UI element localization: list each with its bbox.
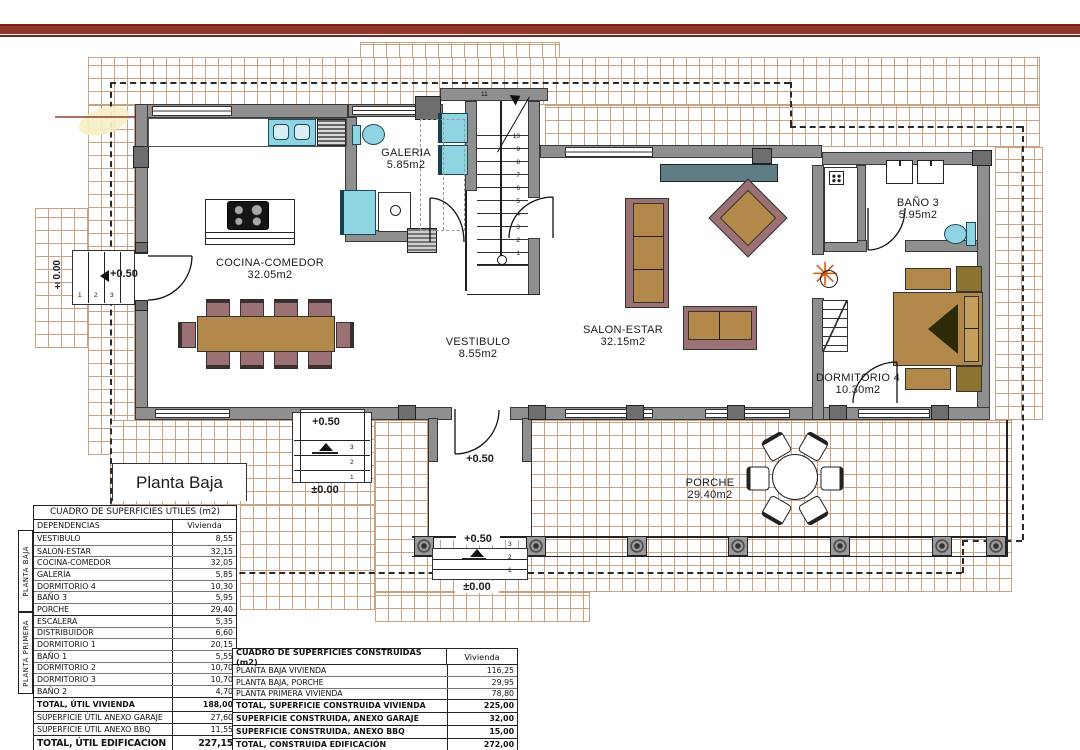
row-label: TOTAL, ÚTIL VIVIENDA <box>34 698 172 711</box>
stairs-step-number-11: 11 <box>481 91 488 98</box>
step-line <box>433 569 527 570</box>
door-galeria <box>429 198 466 244</box>
wall-stairs-right-upper <box>528 101 540 198</box>
toilet-galeria-bowl <box>362 124 385 145</box>
table-header-row: DEPENDENCIAS Vivienda <box>34 520 236 533</box>
window <box>155 409 230 418</box>
step-number: 3 <box>110 292 114 299</box>
row-label: SALON-ESTAR <box>34 546 172 557</box>
wall-block <box>829 405 847 420</box>
step-line <box>294 455 370 456</box>
window <box>705 409 790 418</box>
row-value: 188,00 <box>172 698 236 711</box>
row-label: DORMITORIO 4 <box>34 581 172 592</box>
door-understairs <box>509 197 555 240</box>
wall-block <box>626 405 644 420</box>
step-number: 3 <box>350 444 354 451</box>
kitchen-drainer <box>317 119 346 146</box>
wall-entry-wing-right <box>522 418 532 462</box>
table-row: PLANTA BAJA, PORCHE29,95 <box>233 676 517 687</box>
wall-block <box>931 405 949 420</box>
row-label: TOTAL, SUPERFICIE CONSTRUIDA VIVIENDA <box>233 700 447 712</box>
top-rule-thick <box>0 26 1080 34</box>
dining-chair <box>240 299 264 317</box>
dining-chair <box>274 351 298 369</box>
row-value: 8,55 <box>172 533 236 545</box>
room-label-cocina: COCINA-COMEDOR 32.05m2 <box>216 257 324 281</box>
row-value: 32,00 <box>447 713 517 725</box>
bed-blanket-fold <box>928 304 958 354</box>
level-marker: ±0.00 <box>303 484 347 496</box>
porch-pillar <box>728 536 748 556</box>
door-jamb-block <box>135 242 148 253</box>
table-row: PORCHE29,40 <box>34 603 236 615</box>
level-arrow-base <box>462 558 486 560</box>
row-label: DORMITORIO 2 <box>34 663 172 674</box>
level-arrow-base <box>312 452 338 454</box>
floor-group-label: PLANTA PRIMERA <box>18 612 33 694</box>
stairs-center-rail <box>500 101 502 257</box>
row-label: BAÑO 1 <box>34 651 172 662</box>
row-value: 20,15 <box>172 639 236 650</box>
toilet-galeria-tank <box>352 125 361 145</box>
tile-band-top <box>88 57 1040 105</box>
step-number: 1 <box>350 474 354 481</box>
floor-title-box: Planta Baja <box>112 463 247 501</box>
step-line <box>294 470 370 471</box>
row-label: SUPERFICIE ÚTIL ANEXO GARAJE <box>34 712 172 723</box>
tile-bottom-left-lower <box>240 505 375 610</box>
tile-band-top-notch <box>360 42 560 58</box>
dining-chair <box>206 351 230 369</box>
sofa-cushion-line <box>633 236 664 237</box>
bathroom-sink <box>886 160 913 184</box>
wall-left-lower <box>135 302 148 420</box>
row-value: 272,00 <box>447 739 517 750</box>
dining-chair <box>308 299 332 317</box>
row-value: 29,40 <box>172 604 236 615</box>
level-marker: +0.50 <box>456 533 500 545</box>
row-value: 5,55 <box>172 651 236 662</box>
table-total-row: TOTAL, CONSTRUIDA EDIFICACIÓN272,00 <box>233 738 517 750</box>
wall-salon-bedroom-divider-upper <box>812 165 824 255</box>
dining-chair <box>308 351 332 369</box>
plant-pot-ring <box>820 270 838 288</box>
step-number: 2 <box>94 292 98 299</box>
sofa-cushion-line <box>719 311 720 340</box>
column-header: Vivienda <box>172 520 236 532</box>
dining-chair <box>206 299 230 317</box>
boundary-dash-right <box>1022 126 1024 540</box>
window <box>858 409 930 418</box>
row-value: 116,25 <box>447 665 517 676</box>
porch-pillar <box>414 536 434 556</box>
column-header: DEPENDENCIAS <box>34 520 172 532</box>
table-row: SALON-ESTAR32,15 <box>34 545 236 557</box>
row-label: SUPERFICIE CONSTRUIDA, ANEXO BBQ <box>233 726 447 738</box>
row-value: 10,30 <box>172 581 236 592</box>
row-label: GALERÍA <box>34 569 172 580</box>
table-superficies-construidas: CUADRO DE SUPERFICIES CONSTRUIDAS (m2) V… <box>232 648 518 750</box>
row-value: 15,00 <box>447 726 517 738</box>
table-row: BAÑO 24,70 <box>34 685 236 697</box>
table-body: VESTIBULO8,55SALON-ESTAR32,15COCINA-COME… <box>34 533 236 697</box>
row-value: 27,60 <box>172 712 236 723</box>
kitchen-sink-bowl <box>294 124 310 140</box>
stairs-step-number: 6 <box>480 185 520 192</box>
bed-pillow-divider <box>964 328 979 329</box>
table-total-row: TOTAL, SUPERFICIE CONSTRUIDA VIVIENDA225… <box>233 699 517 712</box>
pillar-block <box>752 148 772 164</box>
step-number: 1 <box>508 567 512 574</box>
step-rail <box>300 412 301 483</box>
row-label: BAÑO 3 <box>34 592 172 603</box>
row-value: 78,80 <box>447 689 517 699</box>
boundary-dash-step <box>790 82 792 126</box>
boundary-dash-top-left <box>110 82 790 84</box>
row-label: PLANTA BAJA, PORCHE <box>233 677 447 687</box>
tile-below-steps <box>375 592 590 622</box>
sofa-3-seat-cushions <box>633 203 664 303</box>
bathroom-sink <box>917 160 944 184</box>
table-title: CUADRO DE SUPERFICIES CONSTRUIDAS (m2) <box>233 649 446 664</box>
row-value: 227,15 <box>172 736 236 750</box>
table-total-row: SUPERFICIE CONSTRUIDA, ANEXO GARAJE32,00 <box>233 712 517 725</box>
galeria-sink-tap <box>390 205 401 216</box>
table-totals: TOTAL, SUPERFICIE CONSTRUIDA VIVIENDA225… <box>233 699 517 750</box>
dining-chair <box>336 322 354 348</box>
row-label: PLANTA BAJA VIVIENDA <box>233 665 447 676</box>
island-shelf-line <box>205 232 295 233</box>
porch-pillar <box>986 536 1006 556</box>
row-label: ESCALERA <box>34 616 172 627</box>
wall-stairs-right-lower <box>528 238 540 295</box>
porch-chair <box>747 467 770 491</box>
table-row: VESTIBULO8,55 <box>34 533 236 545</box>
row-value: 10,70 <box>172 674 236 685</box>
table-row: DORMITORIO 310,70 <box>34 673 236 685</box>
floorplan-sheet: 12345678910 11 ✳ <box>0 0 1080 750</box>
table-row: ESCALERA5,35 <box>34 615 236 627</box>
row-value: 5,95 <box>172 592 236 603</box>
window <box>352 106 424 115</box>
nightstand <box>956 366 982 392</box>
porch-pillar <box>932 536 952 556</box>
stairs-step-number: 10 <box>480 133 520 140</box>
row-label: DORMITORIO 3 <box>34 674 172 685</box>
row-value: 29,95 <box>447 677 517 687</box>
porch-edge-line-outer <box>412 536 1008 538</box>
porch-pillar <box>627 536 647 556</box>
row-label: DORMITORIO 1 <box>34 639 172 650</box>
level-marker: +0.50 <box>304 416 348 428</box>
pillar-block <box>972 150 992 166</box>
table-total-row: TOTAL, ÚTIL VIVIENDA188,00 <box>34 697 236 711</box>
table-row: BAÑO 35,95 <box>34 591 236 603</box>
floor-group-label-text: PLANTA PRIMERA <box>22 620 30 687</box>
row-label: BAÑO 2 <box>34 686 172 697</box>
table-total-row: TOTAL, ÚTIL EDIFICACION227,15 <box>34 735 236 750</box>
table-total-row: SUPERFICIE ÚTIL ANEXO GARAJE27,60 <box>34 711 236 723</box>
wall-block <box>727 405 745 420</box>
row-label: VESTIBULO <box>34 533 172 545</box>
ladder-rack <box>822 300 848 352</box>
table-row: PLANTA BAJA VIVIENDA116,25 <box>233 665 517 676</box>
stairs-step-number: 1 <box>480 250 520 257</box>
tile-band-right <box>995 147 1043 420</box>
table-title: CUADRO DE SUPERFICIES UTILES (m2) <box>34 506 236 520</box>
row-label: COCINA-COMEDOR <box>34 557 172 568</box>
boundary-dash-top-right <box>790 126 1022 128</box>
room-label-salon: SALON-ESTAR 32.15m2 <box>583 324 663 348</box>
row-label: PLANTA PRIMERA VIVIENDA <box>233 689 447 699</box>
step-number: 2 <box>508 554 512 561</box>
room-label-bano3: BAÑO 3 5.95m2 <box>897 197 939 221</box>
floor-group-label: PLANTA BAJA <box>18 530 33 612</box>
step-number: 1 <box>78 292 82 299</box>
row-value: 225,00 <box>447 700 517 712</box>
step-number: 3 <box>508 541 512 548</box>
cooktop-hob <box>227 201 269 230</box>
dining-chair <box>240 351 264 369</box>
door-main-entrance <box>454 409 500 455</box>
table-row: DISTRIBUIDOR6,60 <box>34 627 236 639</box>
level-arrow <box>100 270 109 282</box>
table-row: GALERÍA5,85 <box>34 568 236 580</box>
row-value: 5,85 <box>172 569 236 580</box>
stairs-step-number: 8 <box>480 159 520 166</box>
table-row: DORMITORIO 120,15 <box>34 638 236 650</box>
dining-chair <box>178 322 196 348</box>
table-totals: TOTAL, ÚTIL VIVIENDA188,00SUPERFICIE ÚTI… <box>34 697 236 750</box>
row-value: 10,70 <box>172 663 236 674</box>
nightstand <box>956 266 982 292</box>
porch-pillar <box>830 536 850 556</box>
table-row: PLANTA PRIMERA VIVIENDA78,80 <box>233 688 517 699</box>
room-label-porche: PORCHE 29.40m2 <box>686 477 735 501</box>
row-value: 6,60 <box>172 628 236 639</box>
door-jamb-block <box>135 300 148 311</box>
level-marker: ±0.00 <box>455 581 499 593</box>
table-row: DORMITORIO 210,70 <box>34 662 236 674</box>
dresser <box>905 368 951 390</box>
column-header: Vivienda <box>446 649 517 664</box>
boiler-unit <box>829 171 844 185</box>
sofa-2-seat-cushions <box>688 311 752 340</box>
dining-table <box>197 316 335 352</box>
room-label-galeria: GALERIA 5.85m2 <box>381 147 431 171</box>
table-total-row: SUPERFICIE ÚTIL ANEXO BBQ11,55 <box>34 723 236 735</box>
toilet-bano3-tank <box>966 222 976 246</box>
window <box>152 106 232 116</box>
table-row: COCINA-COMEDOR32,05 <box>34 556 236 568</box>
table-body: PLANTA BAJA VIVIENDA116,25PLANTA BAJA, P… <box>233 665 517 699</box>
step-divider <box>88 252 89 303</box>
wall-left-upper <box>135 104 148 254</box>
stairs-landing-edge <box>467 294 540 295</box>
table-row: DORMITORIO 410,30 <box>34 580 236 592</box>
step-line <box>294 440 370 441</box>
room-label-vestibulo: VESTIBULO 8.55m2 <box>446 336 510 360</box>
row-label: SUPERFICIE ÚTIL ANEXO BBQ <box>34 724 172 735</box>
dresser <box>905 268 951 290</box>
island-shelf-line <box>205 238 295 239</box>
row-value: 32,15 <box>172 546 236 557</box>
row-value: 5,35 <box>172 616 236 627</box>
stairs-step-number: 9 <box>480 146 520 153</box>
porch-pillar <box>526 536 546 556</box>
window <box>565 147 653 157</box>
step-rail <box>364 412 365 483</box>
table-row: BAÑO 15,55 <box>34 650 236 662</box>
bed-pillow-band <box>964 296 979 362</box>
wall-block <box>398 405 416 420</box>
stairs-step-number: 7 <box>480 172 520 179</box>
row-label: SUPERFICIE CONSTRUIDA, ANEXO GARAJE <box>233 713 447 725</box>
level-arrow <box>319 443 333 451</box>
row-label: TOTAL, ÚTIL EDIFICACION <box>34 736 172 750</box>
tv-console <box>660 164 778 182</box>
porch-chair <box>821 467 844 491</box>
row-value: 32,05 <box>172 557 236 568</box>
room-label-dormitorio4: DORMITORIO 4 10.30m2 <box>816 372 900 396</box>
step-number: 2 <box>350 459 354 466</box>
table-total-row: SUPERFICIE CONSTRUIDA, ANEXO BBQ15,00 <box>233 725 517 738</box>
wall-block <box>528 405 546 420</box>
row-value: 11,55 <box>172 724 236 735</box>
level-arrow <box>470 549 484 557</box>
porch-table-round <box>772 454 818 500</box>
fridge <box>340 190 376 235</box>
wall-top-stairs <box>440 88 548 101</box>
row-label: DISTRIBUIDOR <box>34 628 172 639</box>
sofa-cushion-line <box>633 269 664 270</box>
dining-chair <box>274 299 298 317</box>
level-marker: +0.50 <box>458 453 502 465</box>
pillar-block <box>133 146 149 168</box>
boundary-dash-bottom <box>110 572 962 574</box>
floor-title: Planta Baja <box>136 473 223 493</box>
row-label: PORCHE <box>34 604 172 615</box>
row-value: 4,70 <box>172 686 236 697</box>
wall-entry-wing-left <box>428 418 438 462</box>
level-marker-zero: ±0.00 <box>52 260 65 308</box>
row-label: TOTAL, CONSTRUIDA EDIFICACIÓN <box>233 739 447 750</box>
toilet-bano3-bowl <box>944 224 967 244</box>
top-rule-thin-lower <box>0 35 1080 37</box>
table-title-row: CUADRO DE SUPERFICIES CONSTRUIDAS (m2) V… <box>233 649 517 665</box>
porch-edge-right <box>1006 420 1008 556</box>
kitchen-sink-bowl <box>273 124 289 140</box>
level-marker: +0.50 <box>110 268 156 280</box>
floor-group-label-text: PLANTA BAJA <box>22 546 30 597</box>
